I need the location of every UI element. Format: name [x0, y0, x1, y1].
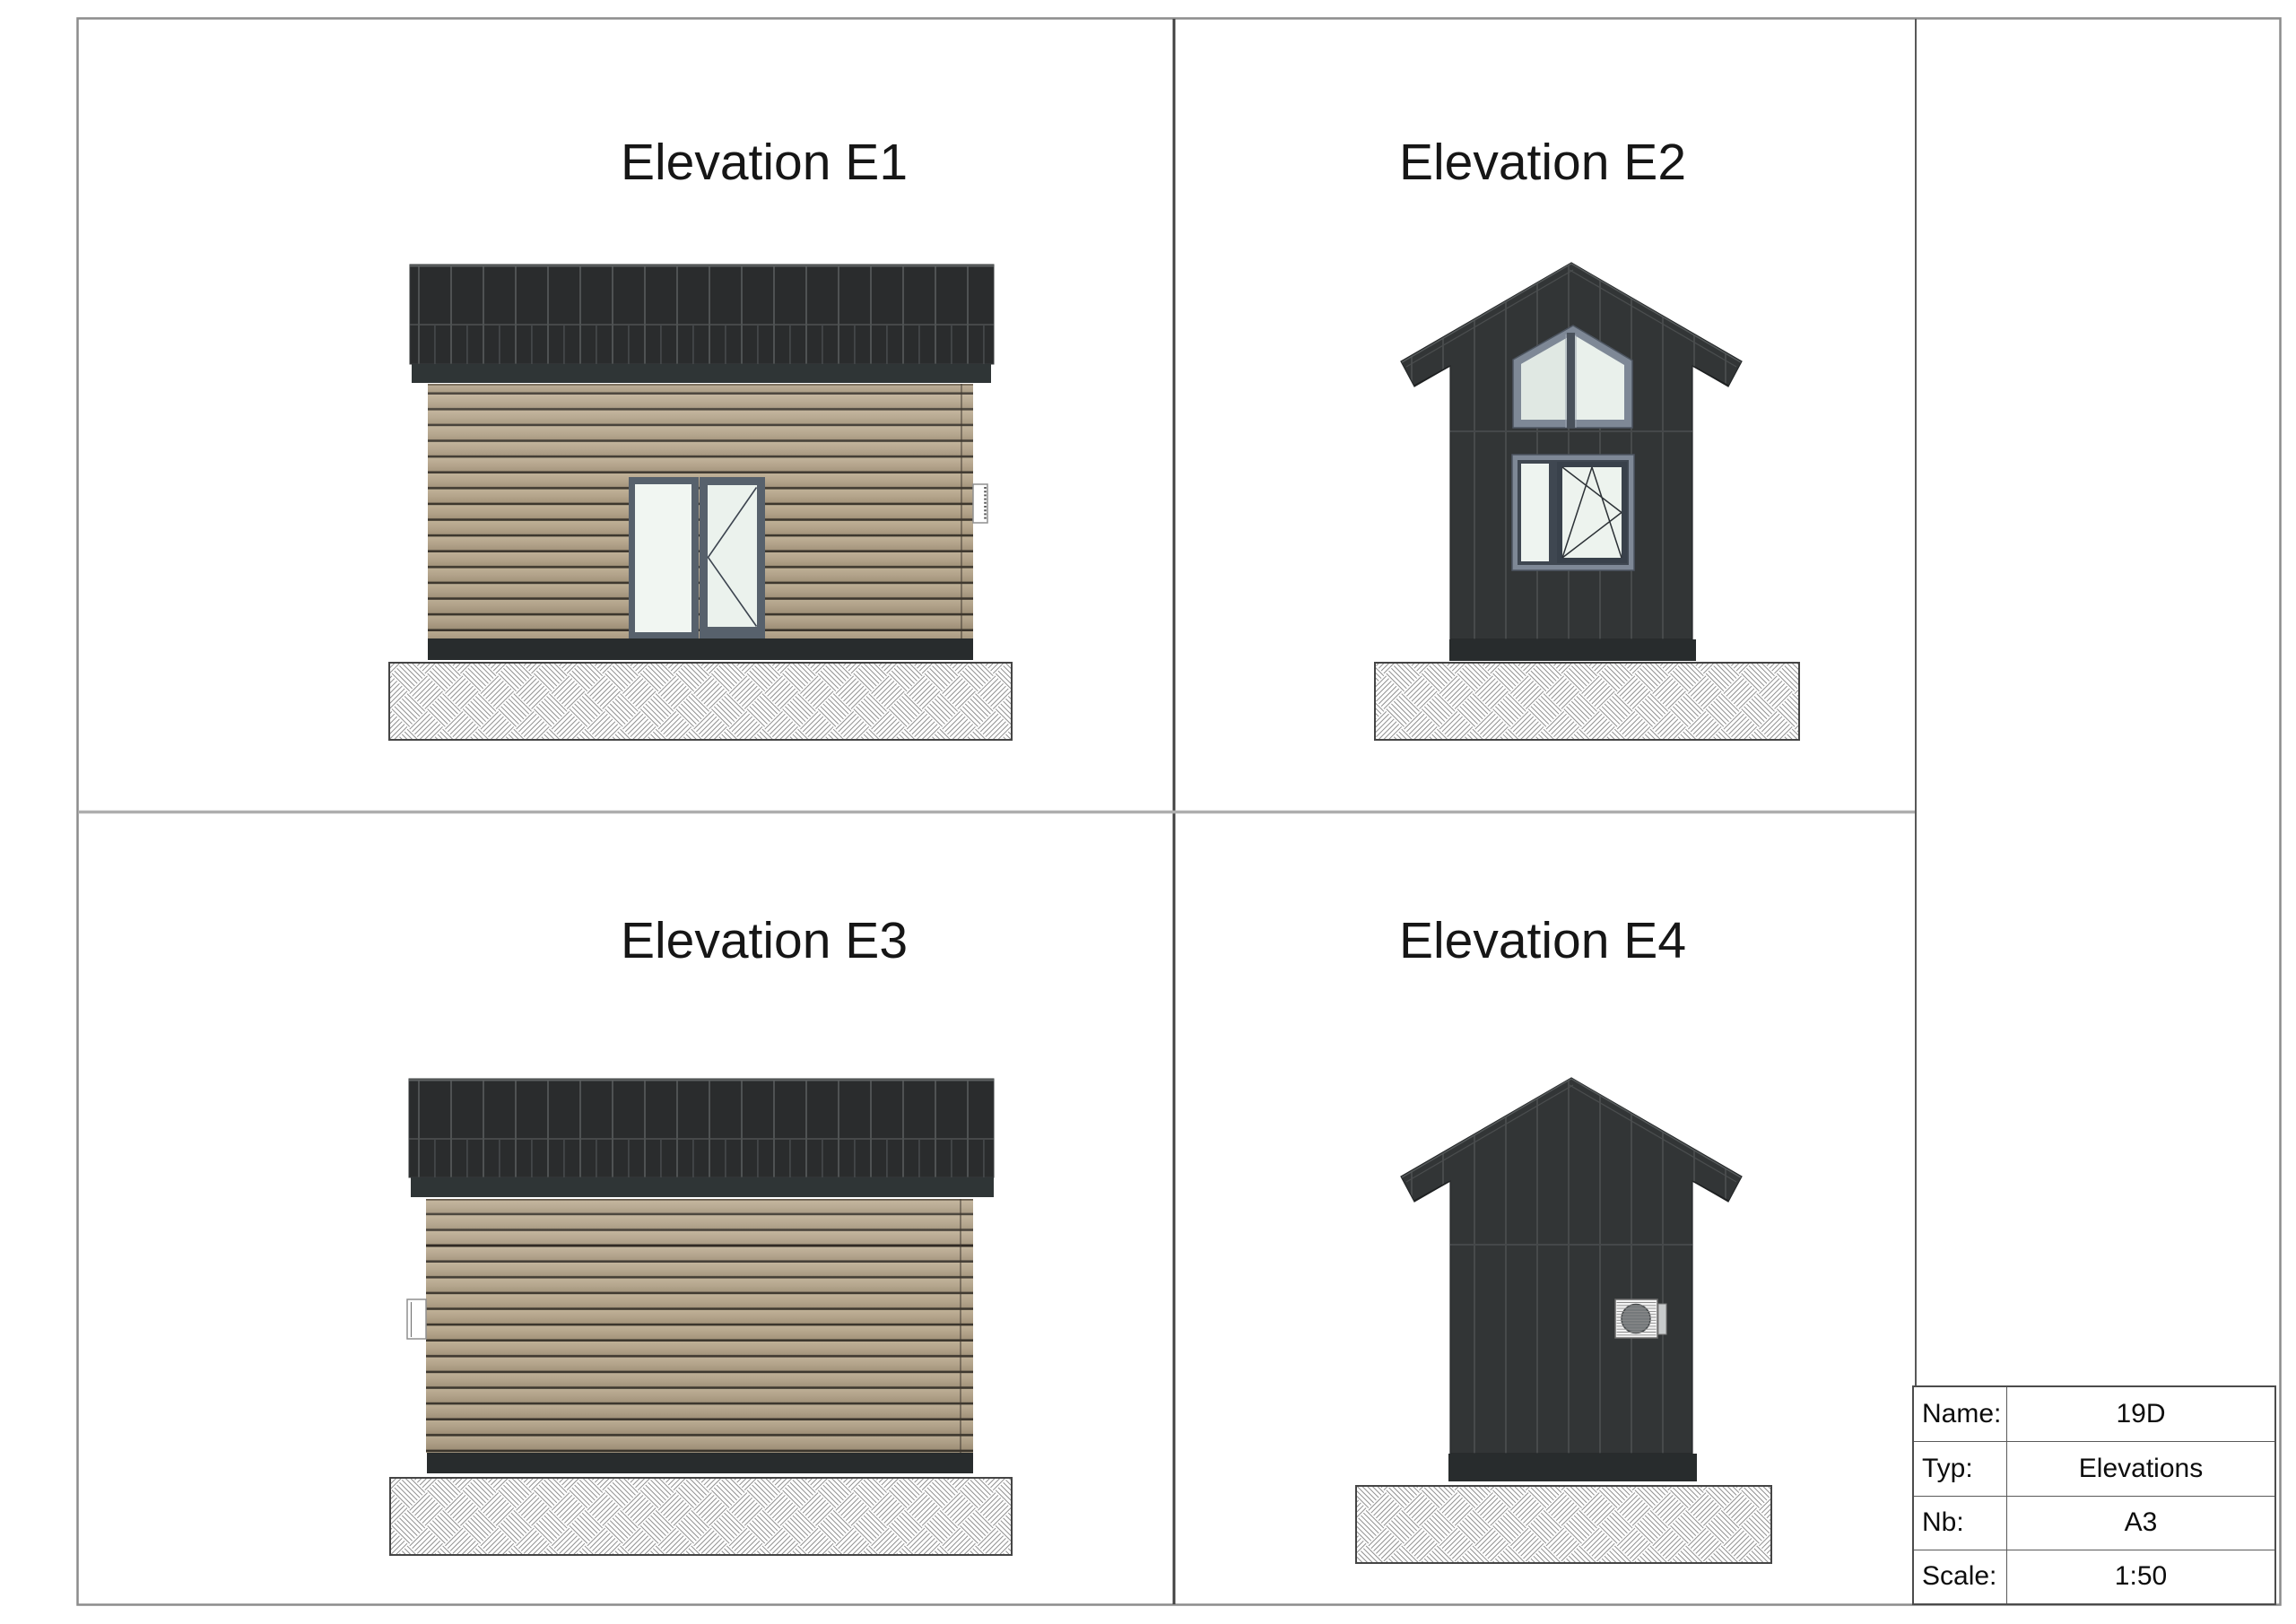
elevation-e2-title: Elevation E2: [1399, 135, 1686, 191]
e3-plinth: [427, 1453, 973, 1473]
e4-plinth: [1448, 1454, 1697, 1481]
elevation-e1-drawing: [389, 265, 1012, 740]
e2-lower-window-fixed-glass: [1521, 464, 1549, 561]
e4-exterior-vent-unit: [1615, 1299, 1666, 1338]
e4-building-silhouette: [1401, 1078, 1742, 1454]
e1-plinth: [428, 638, 973, 660]
e2-building-silhouette: [1401, 263, 1742, 639]
title-block: Name: 19D Typ: Elevations Nb: A3 Scale: …: [1912, 1385, 2276, 1605]
e1-wall-vent-right: [973, 484, 987, 523]
title-block-scale-label: Scale:: [1914, 1550, 2007, 1603]
e2-plinth: [1449, 639, 1696, 661]
e1-door-sidelight-glass: [635, 484, 691, 632]
title-block-name-value: 19D: [2007, 1387, 2274, 1441]
e2-gable-window-mullion: [1567, 333, 1575, 428]
elevation-e2-drawing: [1375, 263, 1799, 740]
e2-tilt-turn-window: [1512, 455, 1634, 570]
title-block-row-typ: Typ: Elevations: [1914, 1441, 2274, 1495]
title-block-nb-label: Nb:: [1914, 1497, 2007, 1550]
e3-foundation-slab: [390, 1478, 1012, 1555]
e1-foundation-slab: [389, 663, 1012, 740]
e4-foundation-slab: [1356, 1486, 1771, 1563]
e1-fascia: [412, 364, 991, 383]
drawing-sheet: Elevation E1 Elevation E2 Elevation E3 E…: [0, 0, 2296, 1624]
elevation-e3-title: Elevation E3: [621, 913, 908, 969]
e1-entry-door: [629, 477, 765, 640]
title-block-name-label: Name:: [1914, 1387, 2007, 1441]
elevation-e1-title: Elevation E1: [621, 135, 908, 191]
title-block-typ-label: Typ:: [1914, 1442, 2007, 1495]
title-block-scale-value: 1:50: [2007, 1550, 2274, 1603]
title-block-nb-value: A3: [2007, 1497, 2274, 1550]
title-block-row-name: Name: 19D: [1914, 1387, 2274, 1441]
e4-vent-side-tab: [1658, 1304, 1666, 1334]
e2-foundation-slab: [1375, 663, 1799, 740]
title-block-row-scale: Scale: 1:50: [1914, 1550, 2274, 1603]
title-block-typ-value: Elevations: [2007, 1442, 2274, 1495]
elevation-e4-title: Elevation E4: [1399, 913, 1686, 969]
e2-lower-window-casement-glass: [1562, 467, 1622, 558]
title-block-row-nb: Nb: A3: [1914, 1496, 2274, 1550]
e3-wall-vent-left: [407, 1299, 426, 1339]
elevation-e3-drawing: [390, 1079, 1012, 1555]
e1-door-leaf-glass: [708, 485, 757, 627]
elevations-drawing: [0, 0, 2296, 1624]
elevation-e4-drawing: [1356, 1078, 1771, 1563]
e3-fascia: [411, 1177, 994, 1197]
sheet-frame: [78, 19, 2281, 1605]
